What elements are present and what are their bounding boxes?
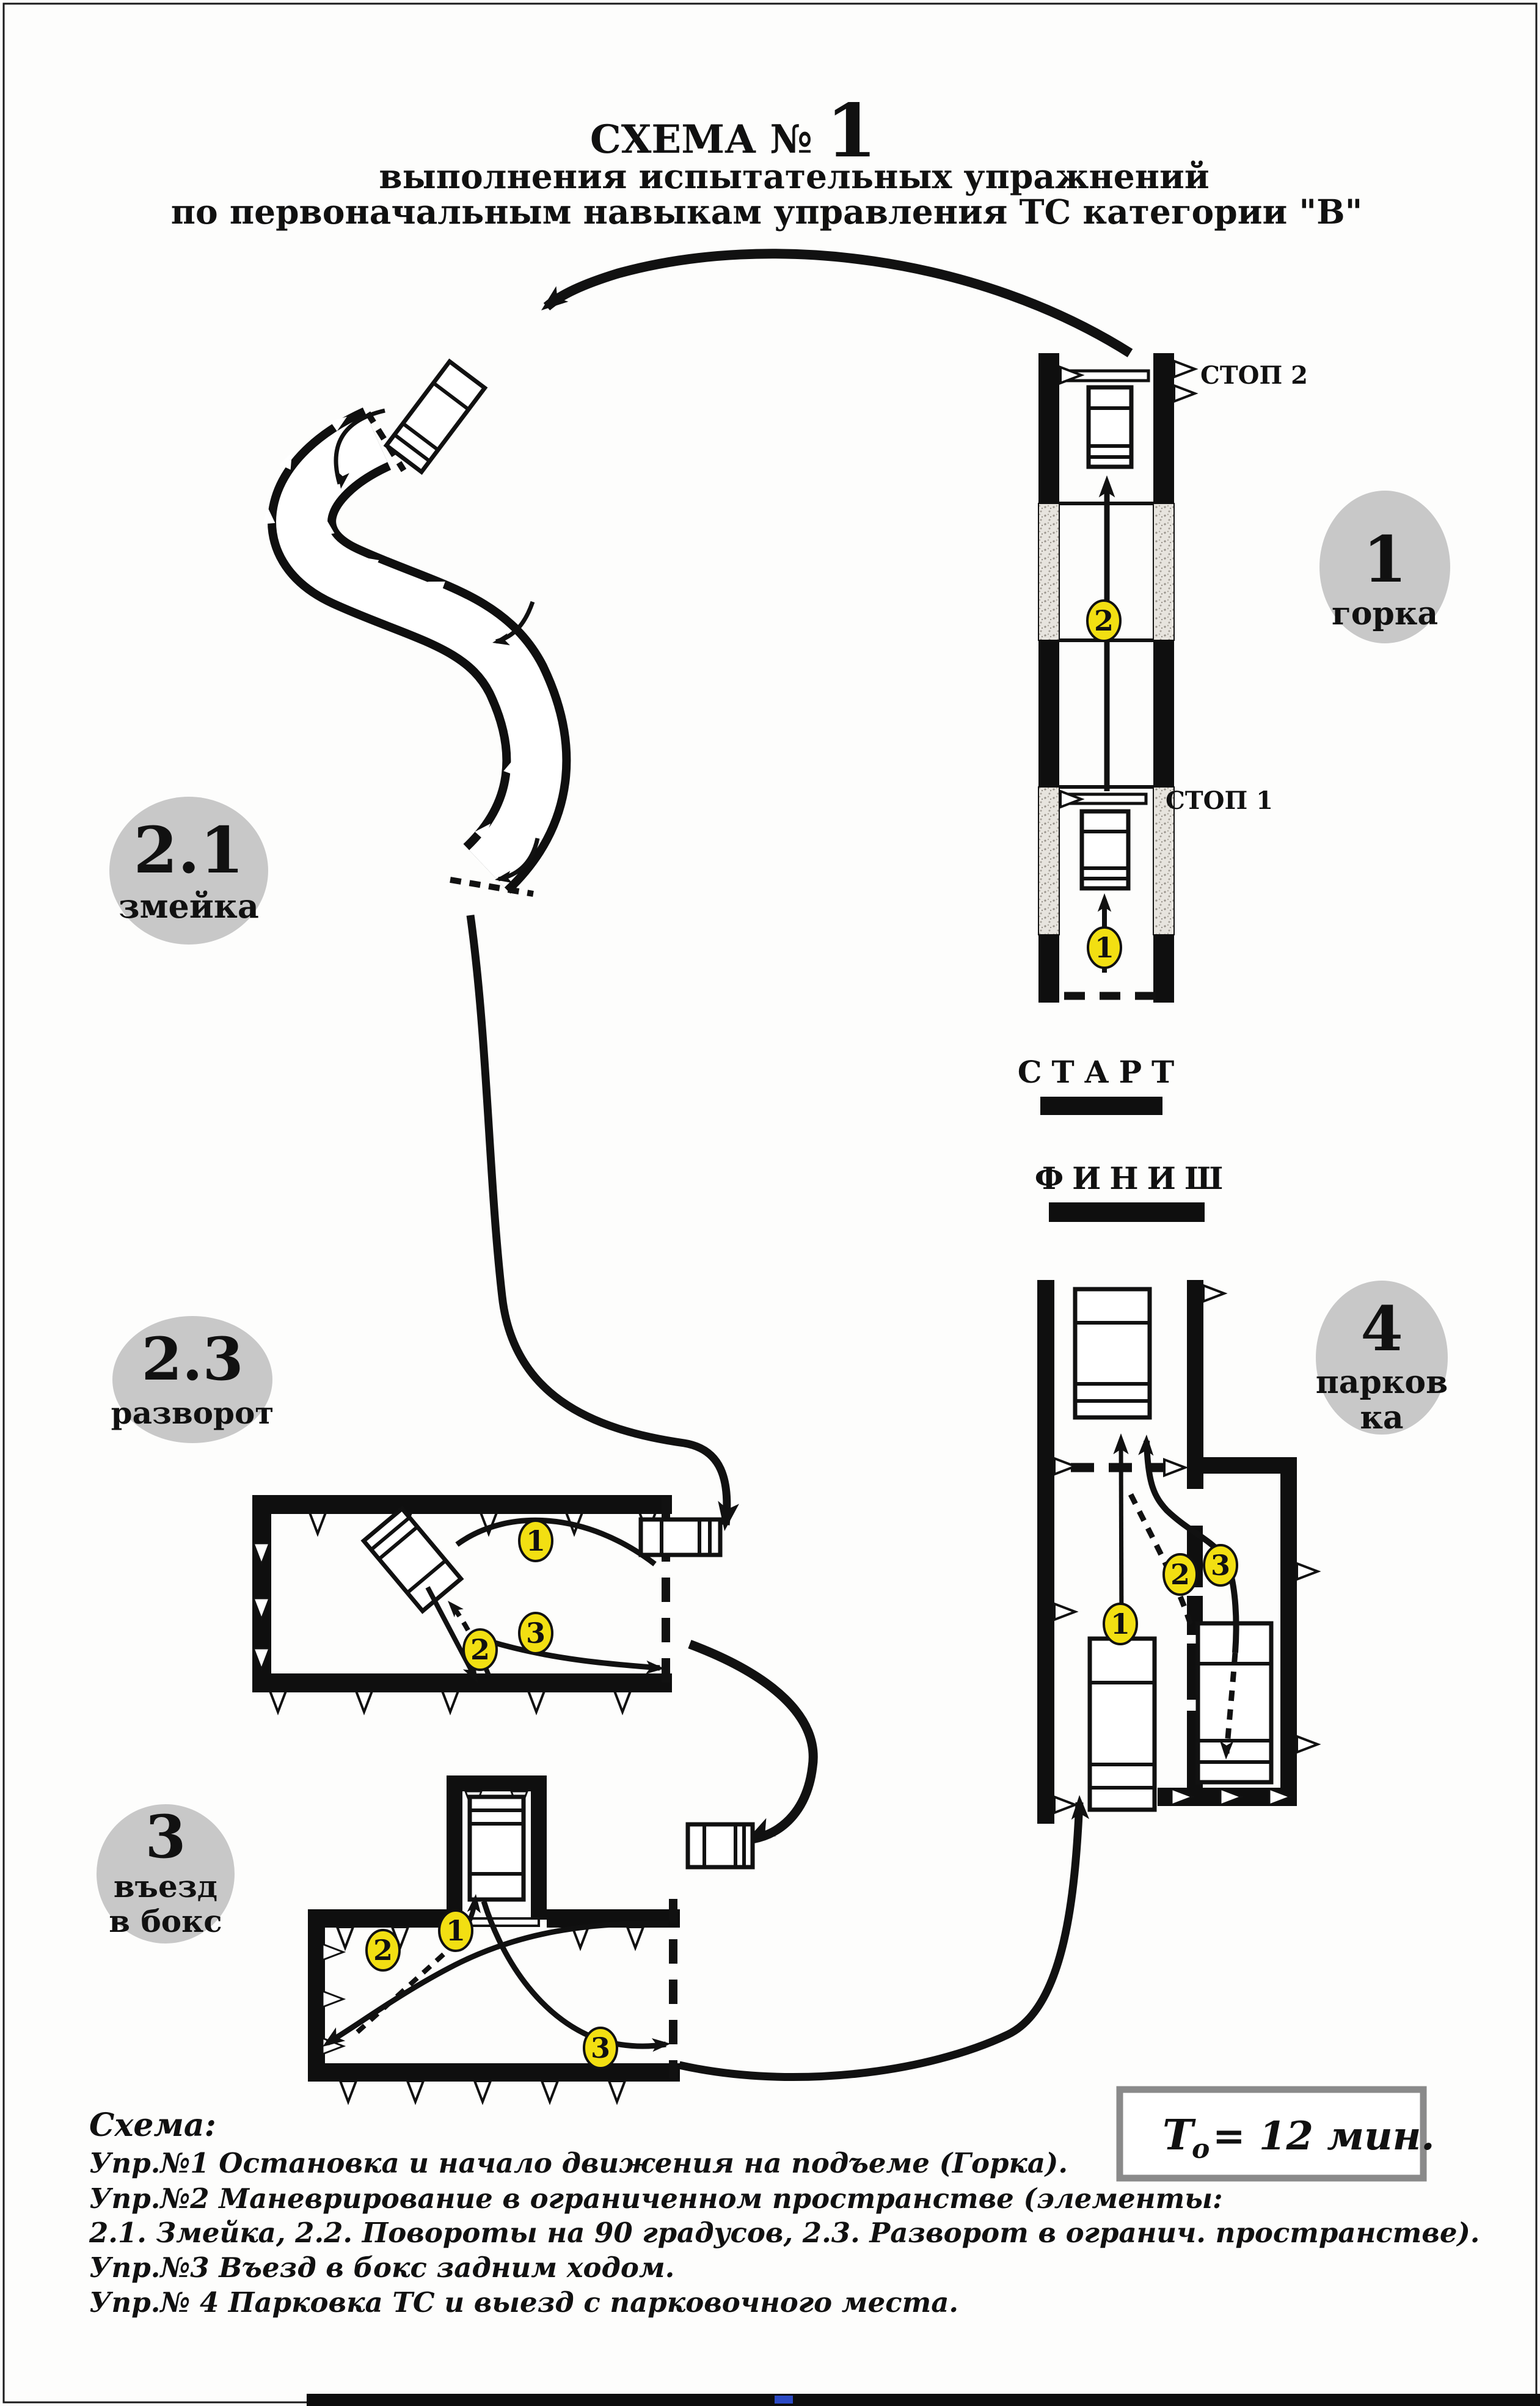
title-line1-prefix: СХЕМА № [590,117,812,163]
parkovka-badge: 4 парков ка [1316,1281,1448,1436]
svg-text:2: 2 [470,1633,490,1666]
svg-text:2: 2 [373,1934,393,1967]
legend-header: Схема: [89,2107,216,2144]
svg-text:2.1: 2.1 [134,813,244,888]
svg-text:4: 4 [1360,1293,1403,1365]
connector-zmeyka-to-razvorot [470,915,727,1525]
svg-text:2: 2 [1170,1558,1190,1591]
car-parkovka-bottom [1090,1639,1155,1810]
boks-exercise: 1 2 3 3 въезд в бокс [97,1775,753,2102]
car-razvorot-entry [641,1519,720,1555]
legend-line-4: Упр.№3 Въезд в бокс задним ходом. [89,2251,674,2284]
gorka-exercise: 2 1 СТОП 2 СТОП 1 1 горка [1038,353,1450,1003]
svg-text:змейка: змейка [119,887,259,926]
gorka-marker-1: 1 [1088,927,1121,968]
parkovka-marker-2: 2 [1164,1554,1197,1595]
svg-text:в бокс: в бокс [109,1903,222,1939]
razvorot-marker-1: 1 [519,1521,552,1561]
svg-text:горка: горка [1332,595,1438,632]
car-gorka-top [1089,387,1131,467]
svg-text:2.3: 2.3 [141,1325,243,1394]
legend-line-1: Упр.№1 Остановка и начало движения на по… [89,2147,1068,2179]
razvorot-marker-3: 3 [519,1613,552,1653]
car-zmeyka-exit [386,362,484,472]
route-connectors [470,254,1130,2077]
boks-marker-1: 1 [439,1911,472,1951]
svg-text:3: 3 [526,1617,546,1650]
svg-text:парков: парков [1316,1364,1448,1401]
car-boks-inside [470,1797,524,1900]
connector-razvorot-to-boks [690,1644,813,1839]
car-razvorot [363,1508,461,1611]
parkovka-exercise: 1 2 3 4 парков ка [1037,1280,1448,1824]
parkovka-marker-1: 1 [1104,1604,1137,1644]
razvorot-badge: 2.3 разворот [111,1316,274,1443]
time-box: Т о = 12 мин. [1120,2090,1435,2178]
gorka-badge: 1 горка [1319,491,1450,643]
time-value: = 12 мин. [1213,2113,1435,2159]
time-subscript: о [1192,2134,1210,2165]
svg-text:1: 1 [1095,931,1114,964]
legend-line-3: 2.1. Змейка, 2.2. Повороты на 90 градусо… [89,2217,1480,2249]
razvorot-exercise: 1 2 3 2.3 разворот [111,1316,720,1712]
legend-line-2: Упр.№2 Маневрирование в ограниченном про… [89,2182,1223,2215]
svg-text:3: 3 [145,1802,186,1871]
start-finish-block: СТАРТ ФИНИШ [1018,1054,1232,1222]
start-bar [1040,1097,1162,1115]
time-symbol: Т [1162,2111,1196,2160]
zmeyka-exercise: 2.1 змейка [109,362,547,945]
title-block: СХЕМА № 1 выполнения испытательных упраж… [171,88,1362,232]
svg-text:1: 1 [446,1914,465,1947]
car-boks-entry [688,1824,753,1867]
stop1-label: СТОП 1 [1166,786,1273,815]
finish-label: ФИНИШ [1035,1160,1232,1196]
svg-text:2: 2 [1094,604,1114,637]
razvorot-marker-2: 2 [464,1629,497,1670]
svg-text:разворот: разворот [111,1395,274,1431]
scheme-page: СХЕМА № 1 выполнения испытательных упраж… [0,0,1540,2406]
svg-text:3: 3 [591,2031,610,2064]
connector-gorka-to-zmeyka [547,254,1130,353]
svg-text:3: 3 [1211,1549,1230,1582]
page-frame [4,4,1540,2406]
car-parkovka-top [1075,1289,1150,1417]
start-label: СТАРТ [1018,1054,1184,1090]
title-line2: выполнения испытательных упражнений [379,156,1209,196]
svg-text:1: 1 [1111,1607,1130,1640]
stop2-label: СТОП 2 [1200,361,1308,390]
zmeyka-badge: 2.1 змейка [109,797,268,945]
parkovka-marker-3: 3 [1204,1545,1237,1585]
gorka-marker-2: 2 [1087,601,1120,641]
svg-text:въезд: въезд [114,1868,217,1904]
svg-text:1: 1 [526,1524,546,1557]
boks-marker-2: 2 [367,1930,400,1970]
svg-text:1: 1 [1363,522,1407,597]
car-gorka-stop1 [1082,811,1128,888]
finish-bar [1049,1202,1205,1222]
boks-badge: 3 въезд в бокс [97,1802,235,1943]
title-line3: по первоначальным навыкам управления ТС … [171,192,1362,232]
boks-marker-3: 3 [584,2028,617,2068]
legend-line-5: Упр.№ 4 Парковка ТС и выезд с парковочно… [89,2286,958,2319]
svg-text:ка: ка [1360,1399,1403,1436]
